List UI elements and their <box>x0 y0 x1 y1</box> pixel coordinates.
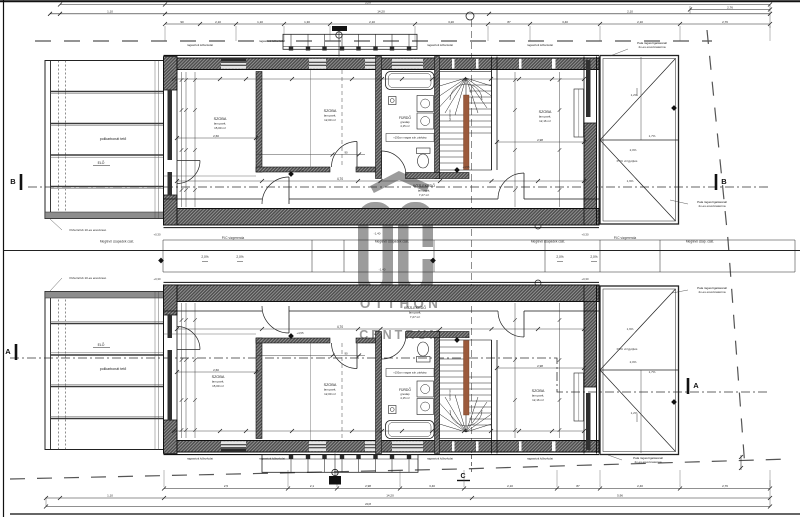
svg-text:2,10: 2,10 <box>507 484 513 488</box>
svg-text:ragasztott kőburkolat: ragasztott kőburkolat <box>427 43 453 47</box>
svg-text:4,70: 4,70 <box>337 177 343 181</box>
svg-text:lam.park.: lam.park. <box>539 115 552 119</box>
svg-text:2,98: 2,98 <box>365 484 371 488</box>
svg-text:ELŐ: ELŐ <box>98 160 105 165</box>
svg-text:Pofa fal kb 10-es ereszcsat.: Pofa fal kb 10-es ereszcsat. <box>69 276 106 280</box>
svg-text:15,00 m²: 15,00 m² <box>212 384 224 388</box>
svg-text:lam.park.: lam.park. <box>324 388 337 392</box>
svg-text:2,40: 2,40 <box>637 484 643 488</box>
svg-text:2,10: 2,10 <box>637 20 643 24</box>
svg-text:B: B <box>721 177 727 186</box>
svg-text:15,00 m²: 15,00 m² <box>214 126 226 130</box>
svg-text:+0,30: +0,30 <box>153 233 161 237</box>
svg-text:lam.park.: lam.park. <box>214 122 227 126</box>
svg-text:+4,55: +4,55 <box>462 165 470 169</box>
svg-text:4,15 m²: 4,15 m² <box>400 124 410 128</box>
svg-text:1,9%: 1,9% <box>627 179 634 183</box>
svg-text:2,10: 2,10 <box>215 20 221 24</box>
svg-text:17x18/25: 17x18/25 <box>448 109 452 121</box>
svg-text:B: B <box>10 177 16 186</box>
svg-text:14,20: 14,20 <box>377 10 385 14</box>
svg-text:2,1: 2,1 <box>310 484 315 488</box>
svg-text:2,60: 2,60 <box>213 134 219 138</box>
svg-text:12,00 m²: 12,00 m² <box>324 118 336 122</box>
svg-text:ragasztott kőburkolat: ragasztott kőburkolat <box>187 457 213 461</box>
svg-text:1,10: 1,10 <box>107 10 113 14</box>
svg-text:-1,40: -1,40 <box>374 232 381 236</box>
svg-text:1,10: 1,10 <box>257 20 263 24</box>
svg-text:+0,30: +0,30 <box>581 233 589 237</box>
svg-text:2x-es ereszcsatorna: 2x-es ereszcsatorna <box>638 45 665 49</box>
svg-text:ragasztott kőburkolat: ragasztott kőburkolat <box>527 43 553 47</box>
svg-text:SZOBA: SZOBA <box>324 109 337 113</box>
svg-text:2,0%: 2,0% <box>630 360 637 364</box>
svg-text:SZOBA: SZOBA <box>539 110 552 114</box>
svg-text:1,30: 1,30 <box>304 20 310 24</box>
svg-text:+4,55: +4,55 <box>296 331 304 335</box>
svg-text:lam.park.: lam.park. <box>212 380 225 384</box>
svg-text:1,2%: 1,2% <box>631 93 638 97</box>
svg-text:Meglévő csap. csat.: Meglévő csap. csat. <box>686 240 714 244</box>
svg-text:20,8: 20,8 <box>365 502 371 506</box>
svg-text:2,60: 2,60 <box>213 368 219 372</box>
svg-text:polikarbonát tető: polikarbonát tető <box>100 137 127 141</box>
svg-text:P.IC vízgerenda: P.IC vízgerenda <box>614 236 637 240</box>
svg-text:+0,30: +0,30 <box>153 277 161 281</box>
svg-text:1,10: 1,10 <box>107 494 113 498</box>
svg-text:+4,55: +4,55 <box>296 169 304 173</box>
svg-text:lam.park.: lam.park. <box>532 394 545 398</box>
svg-text:SZOBA: SZOBA <box>532 389 545 393</box>
svg-text:lam.park.: lam.park. <box>409 311 422 315</box>
svg-text:KÖZLEKEDŐ: KÖZLEKEDŐ <box>413 183 435 188</box>
svg-text:2,0%: 2,0% <box>201 255 208 259</box>
svg-text:SZOBA: SZOBA <box>214 117 227 121</box>
svg-text:17x18/25: 17x18/25 <box>448 389 452 401</box>
svg-text:2,76: 2,76 <box>722 20 728 24</box>
svg-text:ragasztott kőburkolat: ragasztott kőburkolat <box>187 43 213 47</box>
svg-text:A: A <box>693 381 699 390</box>
svg-text:A: A <box>5 347 11 356</box>
svg-text:2x-es ereszcsatorna: 2x-es ereszcsatorna <box>698 204 725 208</box>
svg-text:1,9%: 1,9% <box>627 327 634 331</box>
svg-text:Pofa fal kb 10-es ereszcsat.: Pofa fal kb 10-es ereszcsat. <box>69 228 106 232</box>
svg-text:2,5: 2,5 <box>224 484 229 488</box>
svg-text:polikarbonát tető: polikarbonát tető <box>100 367 127 371</box>
svg-text:P.VC vízgyűjtés: P.VC vízgyűjtés <box>617 159 638 163</box>
svg-text:3,20: 3,20 <box>448 20 454 24</box>
svg-text:ragasztott kőburkolat: ragasztott kőburkolat <box>427 457 453 461</box>
svg-text:-1,40: -1,40 <box>379 268 386 272</box>
svg-text:14,20: 14,20 <box>386 494 394 498</box>
svg-text:20,8: 20,8 <box>365 0 371 4</box>
svg-text:Meglévő csapadék csat.: Meglévő csapadék csat. <box>375 240 409 244</box>
svg-text:2,0%: 2,0% <box>590 255 597 259</box>
svg-text:2,0%: 2,0% <box>236 255 243 259</box>
svg-text:ELŐ: ELŐ <box>98 342 105 347</box>
svg-text:5,96: 5,96 <box>617 494 623 498</box>
svg-text:SZOBA: SZOBA <box>324 383 337 387</box>
svg-text:ragasztott kőburkolat: ragasztott kőburkolat <box>259 457 285 461</box>
svg-text:87: 87 <box>507 20 511 24</box>
svg-text:1,2%: 1,2% <box>631 411 638 415</box>
svg-text:12,00 m²: 12,00 m² <box>324 392 336 396</box>
svg-text:2x-es ereszcsatorna: 2x-es ereszcsatorna <box>698 290 725 294</box>
svg-text:Meglévő csapadék csat.: Meglévő csapadék csat. <box>100 240 134 244</box>
svg-text:2,0%: 2,0% <box>556 255 563 259</box>
svg-text:90: 90 <box>344 351 348 355</box>
svg-text:KÖZLEKEDŐ: KÖZLEKEDŐ <box>404 305 426 310</box>
svg-text:4,70: 4,70 <box>337 325 343 329</box>
svg-text:2,76: 2,76 <box>722 484 728 488</box>
svg-text:2,98: 2,98 <box>537 138 543 142</box>
svg-text:lam.park.: lam.park. <box>418 189 431 193</box>
svg-text:Meglévő csapadék csat.: Meglévő csapadék csat. <box>531 240 565 244</box>
svg-text:+0,30: +0,30 <box>581 277 589 281</box>
svg-text:lam.park.: lam.park. <box>324 114 337 118</box>
svg-text:2,0%: 2,0% <box>630 148 637 152</box>
svg-text:90: 90 <box>344 150 348 154</box>
svg-text:7,27 m²: 7,27 m² <box>410 315 420 319</box>
svg-text:12,16 m²: 12,16 m² <box>539 119 551 123</box>
svg-text:+150cm magas zuh. párkány: +150cm magas zuh. párkány <box>393 136 427 140</box>
svg-text:+150cm magas zuh. párkány: +150cm magas zuh. párkány <box>393 371 427 375</box>
svg-text:1,7%: 1,7% <box>649 370 656 374</box>
svg-text:2,76: 2,76 <box>727 5 733 9</box>
svg-text:2x-es ereszcsatorna: 2x-es ereszcsatorna <box>634 460 661 464</box>
svg-text:90: 90 <box>180 20 184 24</box>
svg-text:4,15 m²: 4,15 m² <box>400 396 410 400</box>
svg-text:ragasztott kőburkolat: ragasztott kőburkolat <box>527 457 553 461</box>
svg-text:3,40: 3,40 <box>562 20 568 24</box>
svg-text:P.IC vízgerenda: P.IC vízgerenda <box>222 236 245 240</box>
svg-text:ragasztott kőburkolat: ragasztott kőburkolat <box>259 39 285 43</box>
svg-text:1,7%: 1,7% <box>649 134 656 138</box>
svg-text:2,10: 2,10 <box>369 20 375 24</box>
svg-text:SZOBA: SZOBA <box>212 375 225 379</box>
svg-text:C: C <box>460 473 465 480</box>
svg-text:12,16 m²: 12,16 m² <box>532 398 544 402</box>
svg-text:2,98: 2,98 <box>537 364 543 368</box>
svg-text:3,40: 3,40 <box>429 484 435 488</box>
svg-text:2,10: 2,10 <box>627 10 633 14</box>
svg-text:+4,55: +4,55 <box>462 335 470 339</box>
svg-text:P.VC vízgyűjtés: P.VC vízgyűjtés <box>617 347 638 351</box>
svg-text:7,27 m²: 7,27 m² <box>419 193 429 197</box>
svg-text:87: 87 <box>576 484 580 488</box>
